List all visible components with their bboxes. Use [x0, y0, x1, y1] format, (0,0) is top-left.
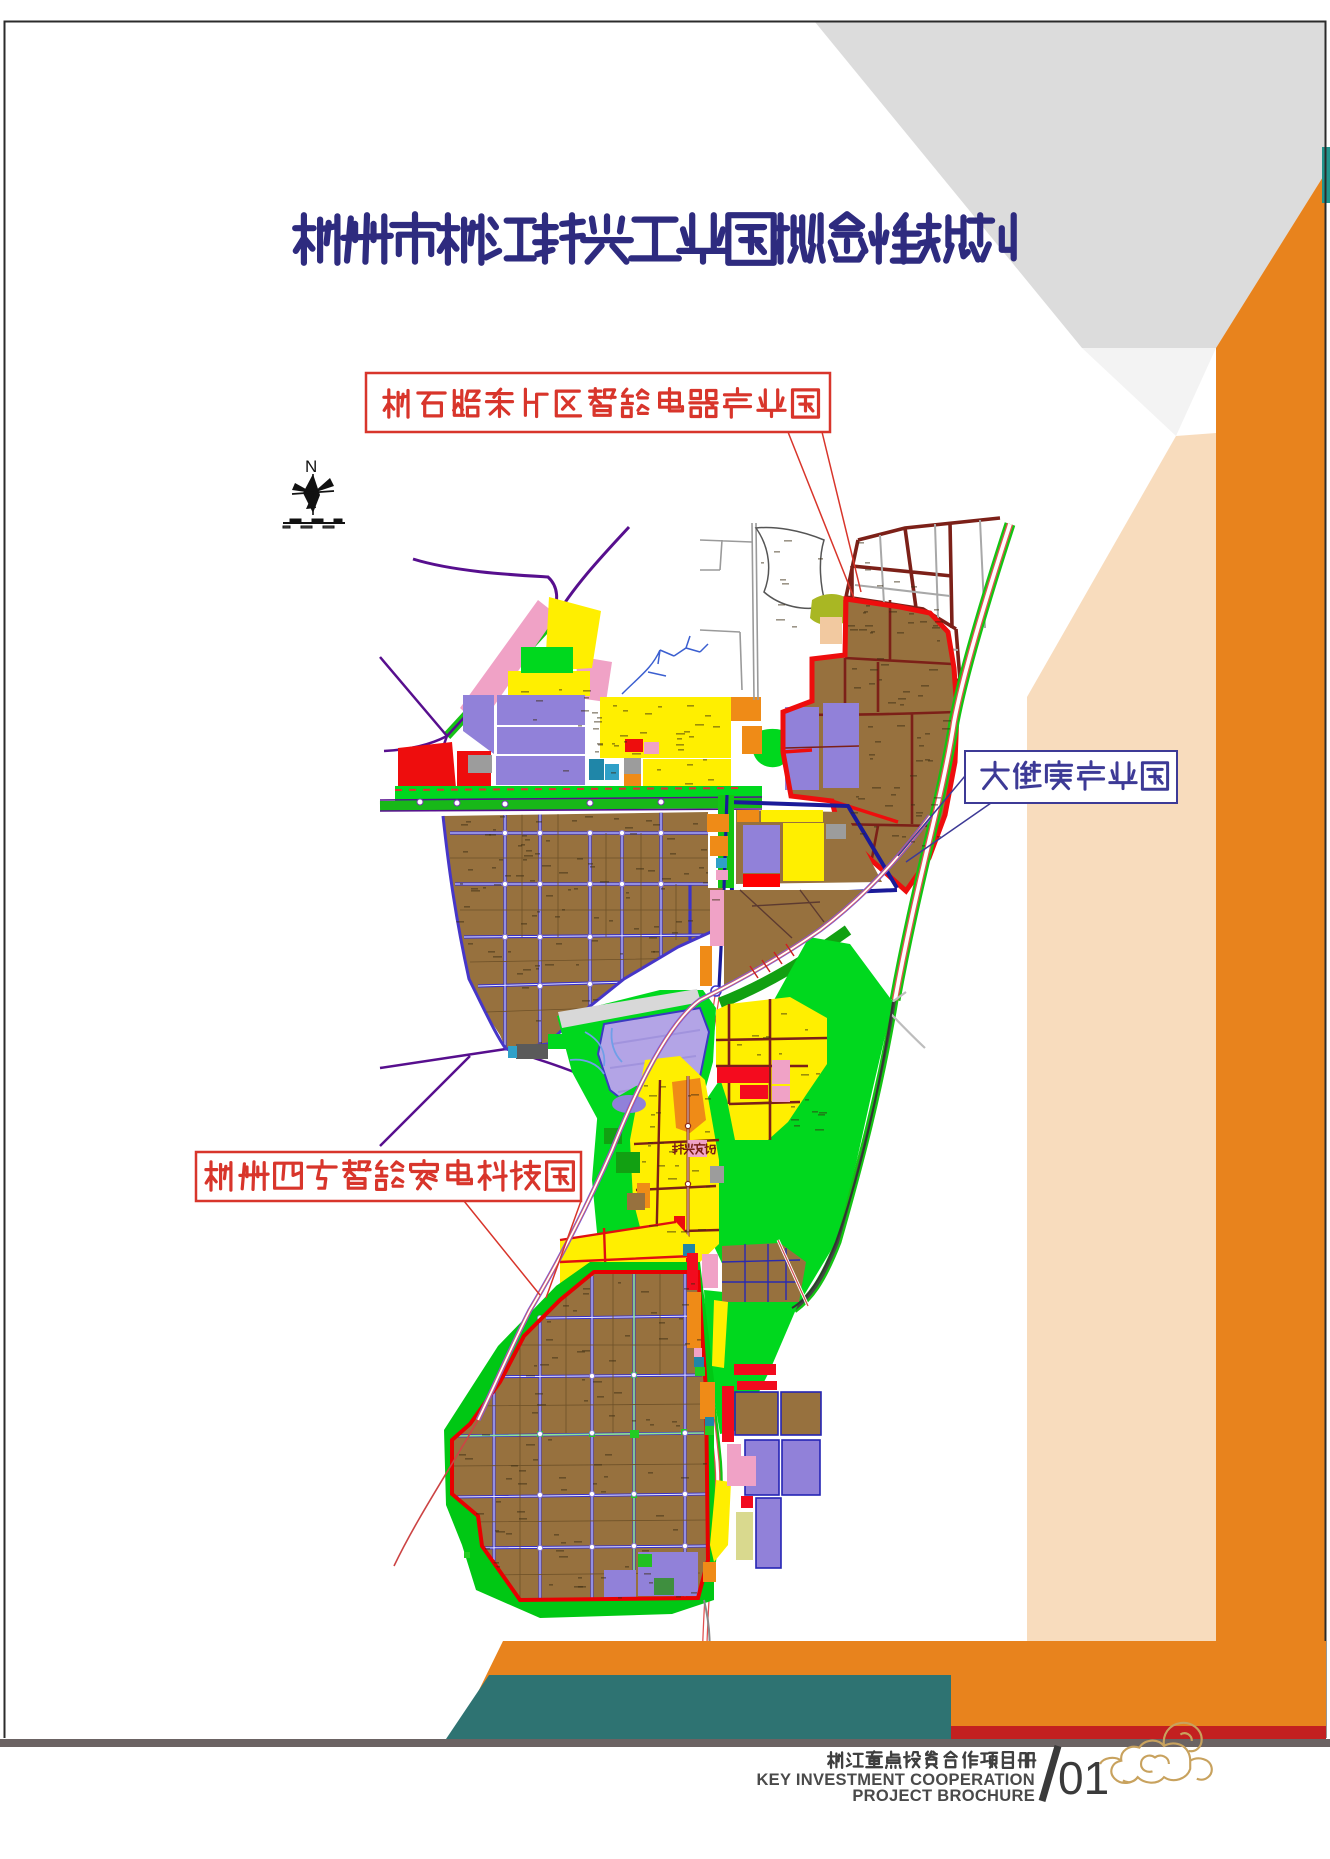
svg-text:N: N	[305, 457, 317, 476]
svg-text:01: 01	[1058, 1752, 1109, 1804]
svg-text:PROJECT BROCHURE: PROJECT BROCHURE	[852, 1787, 1035, 1805]
